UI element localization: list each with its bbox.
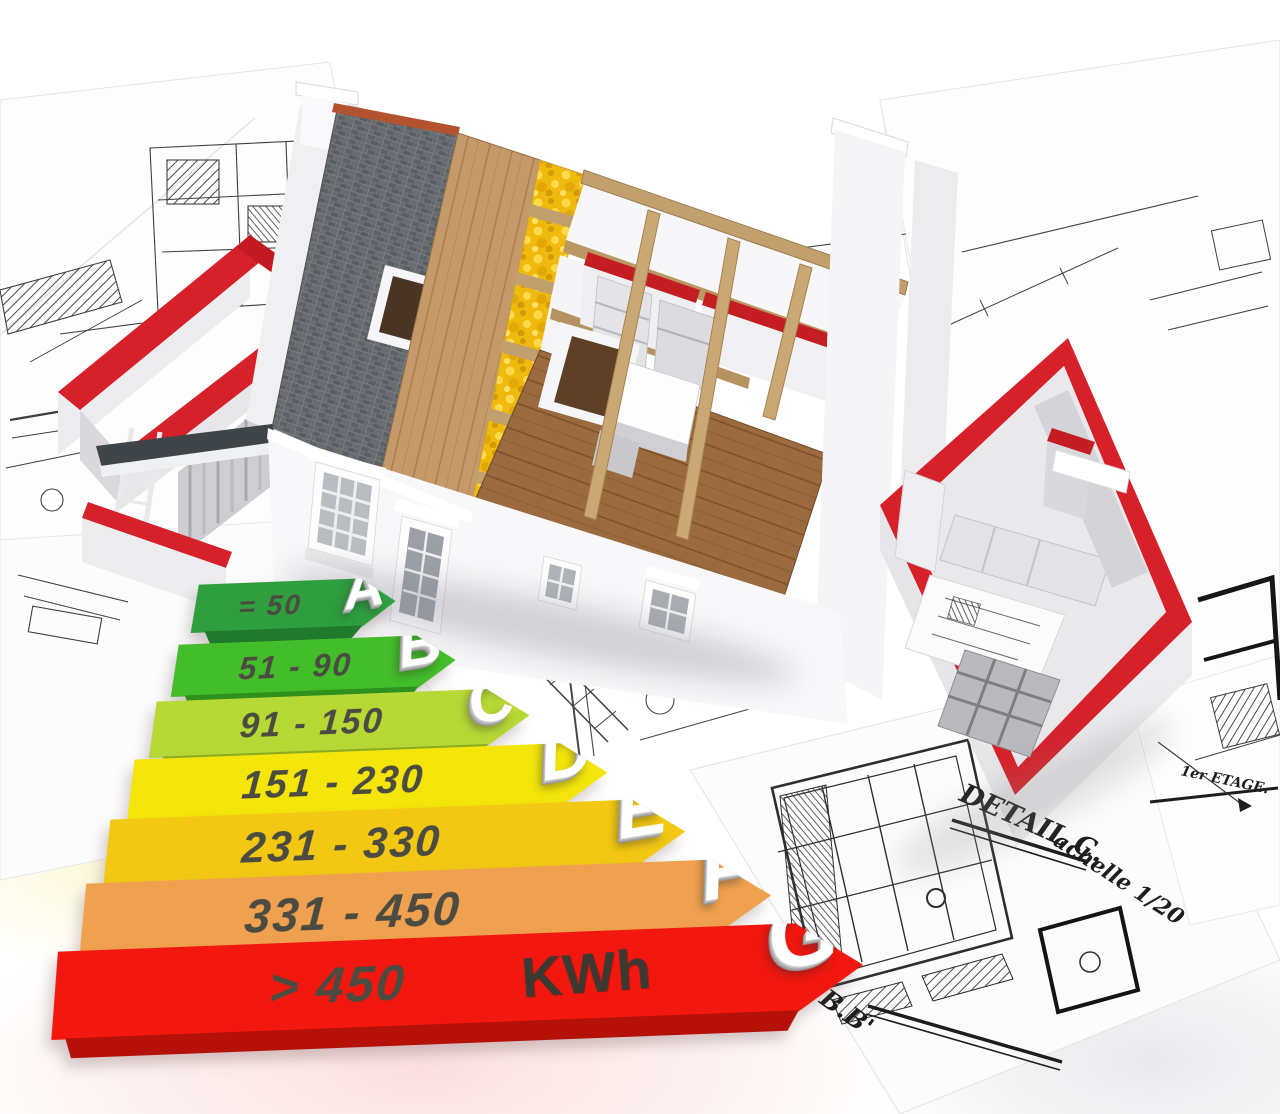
energy-bar-A: = 50 A	[189, 577, 397, 645]
energy-range-label: > 450	[267, 953, 407, 1016]
energy-unit-label: KWh	[519, 935, 654, 1009]
energy-range-label: = 50	[238, 589, 303, 624]
energy-range-label: 51 - 90	[237, 645, 353, 686]
energy-range-label: 331 - 450	[242, 880, 462, 943]
energy-range-label: 231 - 330	[240, 816, 443, 873]
energy-range-label: 91 - 150	[238, 701, 385, 747]
scene-root: { "scene": { "type": "3d-architecture-re…	[0, 0, 1280, 1114]
energy-bar-A-face: = 50 A	[189, 577, 397, 633]
energy-range-label: 151 - 230	[240, 757, 426, 808]
